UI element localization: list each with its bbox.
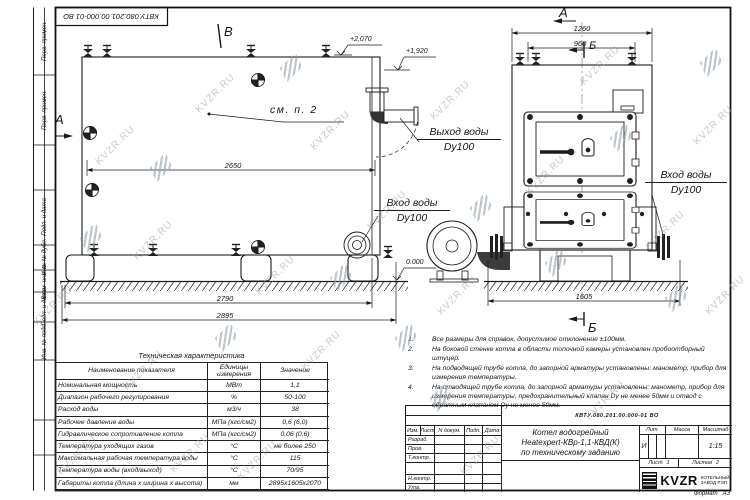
boiler-front-view bbox=[490, 22, 670, 298]
see-note-callout: см. п. 2 bbox=[270, 104, 318, 116]
tb-role-razrab: Разраб. bbox=[406, 436, 434, 445]
tb-role-tkontr: Т.контр. bbox=[406, 454, 434, 463]
note-text: Все размеры для справок, допустимое откл… bbox=[432, 336, 730, 345]
part-name: Котел водогрейный Heatexpert-КВр-1,1-КВД… bbox=[501, 426, 639, 461]
tech-row-name: Температура воды (вход/выход) bbox=[56, 466, 208, 478]
section-marker-b-bottom: Б bbox=[588, 320, 596, 335]
tech-row-name: Рабочее давление воды bbox=[56, 417, 208, 429]
tech-row-value: 50-100 bbox=[261, 392, 329, 404]
tech-row-value: 0,6 (6,0) bbox=[261, 417, 329, 429]
watermark-text: KVZR.RU bbox=[254, 254, 298, 298]
tech-row-value: не более 250 bbox=[261, 441, 329, 453]
tb-sheets-label: Листов bbox=[692, 460, 712, 466]
inlet-water-label-right: Вход воды Dy100 bbox=[645, 169, 727, 196]
kvzr-stripe-icon bbox=[610, 122, 632, 152]
dim-2650: 2650 bbox=[211, 161, 255, 170]
tech-col-header: Значение bbox=[261, 363, 329, 380]
kvzr-stripe-icon bbox=[150, 152, 172, 182]
note-item: 2. На боковой стенке котла в области топ… bbox=[408, 346, 730, 364]
title-block: КВТУ.080.201.00.000-01 ВО Изм. Лист N до… bbox=[405, 405, 731, 491]
section-marker-b-top: Б bbox=[589, 40, 596, 52]
format-label: Формат А3 bbox=[618, 491, 730, 497]
tech-col-header: Единицы измерения bbox=[208, 363, 261, 380]
note-number: 2. bbox=[408, 346, 432, 364]
tb-col-izm: Изм. bbox=[406, 426, 420, 436]
stamp-label: Подп. и дата bbox=[42, 288, 48, 326]
tech-row-value: 70/95 bbox=[261, 466, 329, 478]
section-marker-a-left: А bbox=[55, 112, 64, 127]
doc-number-title-block: КВТУ.080.201.00.000-01 ВО bbox=[501, 406, 732, 426]
dim-2790: 2790 bbox=[203, 294, 247, 303]
tb-role-utv: Утв. bbox=[406, 484, 434, 492]
watermark-text: KVZR.RU bbox=[132, 219, 176, 263]
kvzr-logo-icon bbox=[642, 472, 657, 489]
outlet-water-label: Выход воды Dy100 bbox=[417, 126, 501, 153]
tech-row-value: 2895х1605х2070 bbox=[261, 478, 329, 490]
inlet-water-text: Вход воды bbox=[645, 169, 727, 183]
dimension-lines bbox=[56, 21, 680, 326]
tech-row-name: Максимальная рабочая температура воды bbox=[56, 453, 208, 465]
tech-row-name: Габариты котла (длина х ширина х высота) bbox=[56, 478, 208, 490]
tb-lit-value: И bbox=[639, 435, 648, 459]
dim-2895: 2895 bbox=[203, 311, 247, 320]
kvzr-stripe-icon bbox=[470, 192, 492, 222]
watermark-text: KVZR.RU bbox=[194, 72, 238, 116]
part-name-line3: по техническому заданию bbox=[521, 448, 620, 458]
tech-row-name: Температура уходящих газов bbox=[56, 441, 208, 453]
elevation-mid: +1,920 bbox=[406, 48, 428, 55]
kvzr-logo-text: KVZR bbox=[660, 473, 697, 488]
dim-1260: 1260 bbox=[562, 24, 602, 33]
stamp-label: Перв. примен. bbox=[42, 90, 48, 130]
tb-role-nkontr: Н.контр. bbox=[406, 475, 434, 484]
tech-row-name: Номинальная мощность bbox=[56, 380, 208, 392]
tech-row-value: 115 bbox=[261, 453, 329, 465]
tech-table: Наименование показателя Единицы измерени… bbox=[55, 362, 328, 491]
tech-row-unit: м3/ч bbox=[208, 404, 261, 416]
view-marker-a-top: А bbox=[559, 5, 568, 20]
tech-row-unit: мм bbox=[208, 478, 261, 490]
company-name: КОТЕЛЬНЫЙ ЗАВОД РЭП bbox=[701, 475, 730, 486]
outlet-water-text: Выход воды bbox=[417, 126, 501, 140]
tb-sheet-label: Лист bbox=[648, 460, 662, 466]
tech-row-unit: МПа (кгс/см2) bbox=[208, 429, 261, 441]
watermark-text: KVZR.RU bbox=[429, 79, 473, 123]
notes-list: 1. Все размеры для справок, допустимое о… bbox=[408, 336, 730, 412]
watermark-text: KVZR.RU bbox=[436, 274, 480, 318]
tb-mass-label: Масса bbox=[665, 426, 698, 435]
tb-col-list: Лист bbox=[420, 426, 434, 436]
company-logo-cell: KVZR КОТЕЛЬНЫЙ ЗАВОД РЭП bbox=[639, 468, 732, 492]
format-word: Формат bbox=[694, 491, 718, 497]
note-number: 3. bbox=[408, 365, 432, 383]
tech-row-unit: МВт bbox=[208, 380, 261, 392]
tech-row-value: 0,06 (0,6) bbox=[261, 429, 329, 441]
tb-col-podp: Подп. bbox=[464, 426, 482, 436]
tb-col-data: Дата bbox=[482, 426, 501, 436]
tb-sheet-value: 1 bbox=[667, 460, 670, 466]
watermark-text: KVZR.RU bbox=[704, 274, 748, 318]
kvzr-stripe-icon bbox=[545, 247, 567, 277]
inlet-water-text: Вход воды bbox=[374, 197, 450, 211]
tech-row-name: Гидравлическое сопротивление котла bbox=[56, 429, 208, 441]
watermark-text: KVZR.RU bbox=[692, 104, 736, 148]
tb-scale-value: 1:15 bbox=[698, 435, 732, 459]
stamp-label: Перв. примен. bbox=[42, 21, 48, 61]
tb-col-ndoc: N докум. bbox=[434, 426, 464, 436]
format-value: А3 bbox=[723, 491, 730, 497]
tb-role-prov: Пров. bbox=[406, 445, 434, 454]
stamp-label: Инв. № подл. bbox=[42, 322, 48, 359]
kvzr-stripe-icon bbox=[700, 47, 722, 77]
doc-number-top: КВТУ.080.201.00.000-01 ВО bbox=[55, 7, 167, 25]
tech-row-value: 38 bbox=[261, 404, 329, 416]
kvzr-stripe-icon bbox=[215, 322, 237, 352]
note-number: 1. bbox=[408, 336, 432, 345]
tech-row-name: Диапазон рабочего регулирования bbox=[56, 392, 208, 404]
kvzr-stripe-icon bbox=[280, 52, 302, 82]
watermark-text: KVZR.RU bbox=[644, 209, 688, 253]
tech-col-header: Наименование показателя bbox=[56, 363, 208, 380]
watermark-text: KVZR.RU bbox=[524, 154, 568, 198]
watermark-text: KVZR.RU bbox=[579, 44, 623, 88]
tb-lit-label: Лит. bbox=[639, 426, 665, 435]
tech-row-unit: МПа (кгс/см2) bbox=[208, 417, 261, 429]
engineering-drawing-page: KVZR.RU KVZR.RU KVZR.RU KVZR.RU KVZR.RU … bbox=[0, 0, 750, 500]
part-name-line2: Heatexpert-КВр-1,1-КВД(К) bbox=[521, 438, 619, 448]
tb-mass-value bbox=[665, 435, 698, 459]
watermark-text: KVZR.RU bbox=[94, 124, 138, 168]
elevation-zero: 0.000 bbox=[406, 259, 424, 266]
watermark-text: KVZR.RU bbox=[32, 284, 76, 328]
section-marker-v: В bbox=[224, 24, 233, 39]
kvzr-stripe-icon bbox=[80, 222, 102, 252]
elevation-top: +2,070 bbox=[350, 36, 372, 43]
tech-row-unit: % bbox=[208, 392, 261, 404]
note-item: 3. На подводящей трубе котла, до запорно… bbox=[408, 365, 730, 383]
boiler-side-view bbox=[60, 46, 688, 292]
note-text: На подводящей трубе котла, до запорной а… bbox=[432, 365, 730, 383]
kvzr-stripe-icon bbox=[665, 282, 687, 312]
part-name-line1: Котел водогрейный bbox=[532, 428, 608, 438]
note-item: 1. Все размеры для справок, допустимое о… bbox=[408, 336, 730, 345]
dim-1605: 1605 bbox=[562, 292, 606, 301]
tech-row-unit: °С bbox=[208, 453, 261, 465]
tech-row-name: Расход воды bbox=[56, 404, 208, 416]
tech-row-unit: °С bbox=[208, 441, 261, 453]
tb-sheets-value: 2 bbox=[716, 460, 719, 466]
outlet-water-dn: Dy100 bbox=[417, 140, 501, 153]
company-name-line2: ЗАВОД РЭП bbox=[701, 480, 730, 485]
tb-scale-label: Масштаб bbox=[698, 426, 732, 435]
kvzr-stripe-icon bbox=[330, 262, 352, 292]
tech-row-unit: °С bbox=[208, 466, 261, 478]
tech-row-value: 1,1 bbox=[261, 380, 329, 392]
inlet-water-dn: Dy100 bbox=[645, 183, 727, 196]
tech-table-title: Техническая характеристика bbox=[55, 351, 328, 360]
inlet-water-label: Вход воды Dy100 bbox=[374, 197, 450, 224]
stamp-label: Подп. и дата bbox=[42, 198, 48, 236]
inlet-water-dn: Dy100 bbox=[374, 211, 450, 224]
note-text: На боковой стенке котла в области топочн… bbox=[432, 346, 730, 364]
